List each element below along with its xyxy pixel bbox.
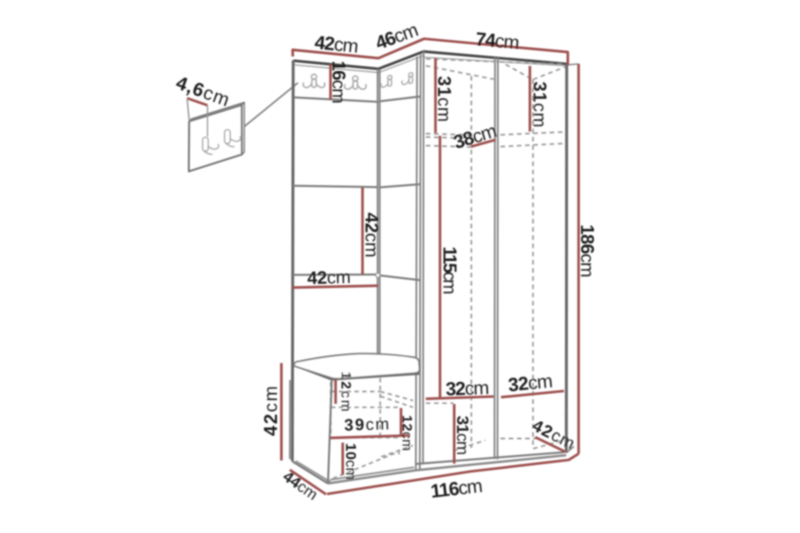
svg-text:186cm: 186cm xyxy=(577,225,598,278)
svg-text:42cm: 42cm xyxy=(260,386,281,436)
svg-text:42cm: 42cm xyxy=(362,213,383,258)
svg-text:74cm: 74cm xyxy=(475,29,521,54)
svg-text:16cm: 16cm xyxy=(329,61,350,104)
svg-text:12cm: 12cm xyxy=(398,415,414,451)
svg-text:12cm: 12cm xyxy=(339,372,355,412)
svg-text:31cm: 31cm xyxy=(530,82,550,128)
svg-text:42cm: 42cm xyxy=(314,33,360,58)
svg-text:32cm: 32cm xyxy=(445,378,489,401)
svg-text:42cm: 42cm xyxy=(307,267,351,288)
svg-text:31cm: 31cm xyxy=(434,76,454,122)
svg-text:31cm: 31cm xyxy=(453,416,472,456)
svg-text:10cm: 10cm xyxy=(342,443,359,480)
svg-text:32cm: 32cm xyxy=(507,371,554,396)
svg-text:39cm: 39cm xyxy=(344,415,389,434)
svg-text:115cm: 115cm xyxy=(440,247,461,295)
